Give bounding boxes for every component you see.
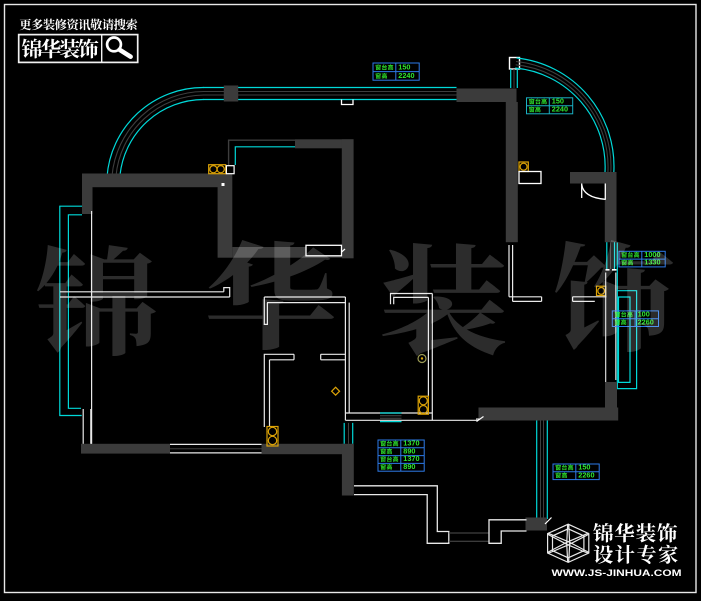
svg-text:890: 890 [403,462,415,471]
svg-text:2240: 2240 [398,71,414,80]
svg-text:WWW.JS-JINHUA.COM: WWW.JS-JINHUA.COM [552,568,682,579]
svg-text:2260: 2260 [578,470,594,479]
svg-text:2240: 2240 [552,105,568,114]
